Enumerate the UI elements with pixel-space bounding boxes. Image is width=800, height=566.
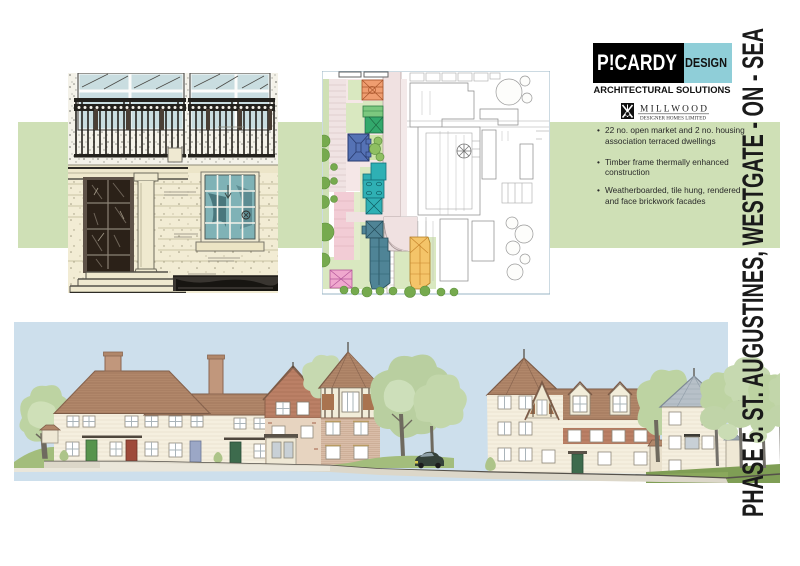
svg-text:PHASE 5. ST. AUGUSTINES, WESTG: PHASE 5. ST. AUGUSTINES, WESTGATE - ON -… bbox=[737, 28, 770, 517]
